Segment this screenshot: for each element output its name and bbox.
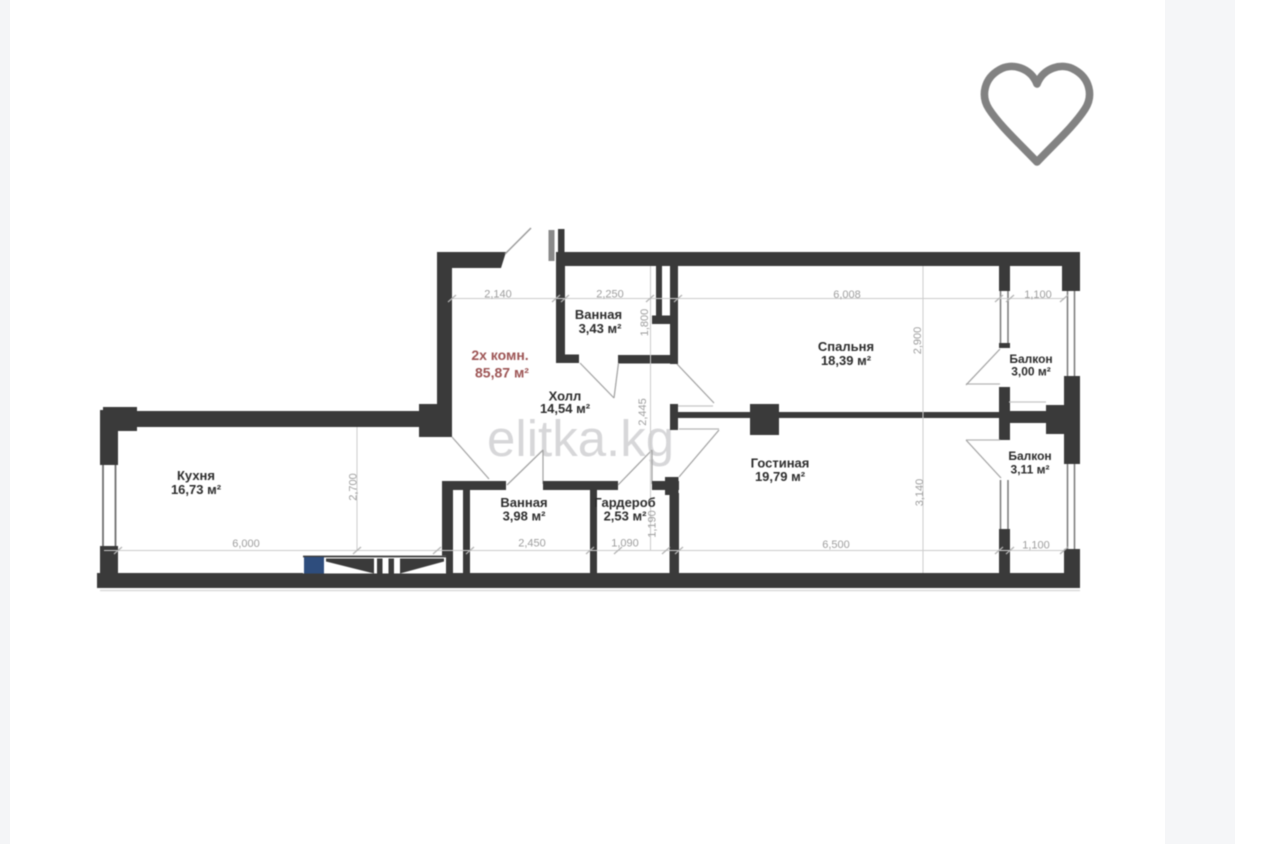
svg-text:1,190: 1,190 <box>647 510 659 538</box>
svg-text:2,53 м²: 2,53 м² <box>604 509 648 524</box>
svg-text:2,445: 2,445 <box>637 398 649 426</box>
svg-text:85,87 м²: 85,87 м² <box>475 365 529 381</box>
svg-text:14,54 м²: 14,54 м² <box>540 401 591 416</box>
svg-text:2х комн.: 2х комн. <box>471 347 528 363</box>
svg-text:3,00 м²: 3,00 м² <box>1011 365 1051 379</box>
svg-text:18,39 м²: 18,39 м² <box>821 353 872 368</box>
svg-text:3,98 м²: 3,98 м² <box>503 509 547 524</box>
svg-text:2,140: 2,140 <box>484 289 512 301</box>
svg-text:Балкон: Балкон <box>1008 449 1051 463</box>
svg-text:1,090: 1,090 <box>611 538 639 550</box>
svg-text:2,250: 2,250 <box>596 289 624 301</box>
svg-text:2,450: 2,450 <box>518 538 546 550</box>
svg-text:16,73 м²: 16,73 м² <box>171 482 222 497</box>
svg-text:1,100: 1,100 <box>1022 540 1050 552</box>
svg-text:6,008: 6,008 <box>833 289 861 301</box>
svg-text:3,11 м²: 3,11 м² <box>1011 463 1050 477</box>
svg-text:3,140: 3,140 <box>914 479 926 507</box>
svg-text:1,100: 1,100 <box>1024 289 1052 301</box>
svg-text:Ванная: Ванная <box>575 307 622 322</box>
svg-text:19,79 м²: 19,79 м² <box>755 469 806 484</box>
svg-text:6,500: 6,500 <box>822 539 850 551</box>
svg-text:Кухня: Кухня <box>177 468 215 483</box>
svg-text:3,43 м²: 3,43 м² <box>579 321 623 336</box>
svg-text:6,000: 6,000 <box>232 538 260 550</box>
svg-text:1,800: 1,800 <box>639 309 651 337</box>
svg-text:Спальня: Спальня <box>818 339 874 354</box>
svg-text:2,900: 2,900 <box>912 327 924 355</box>
svg-text:2,700: 2,700 <box>348 473 360 501</box>
